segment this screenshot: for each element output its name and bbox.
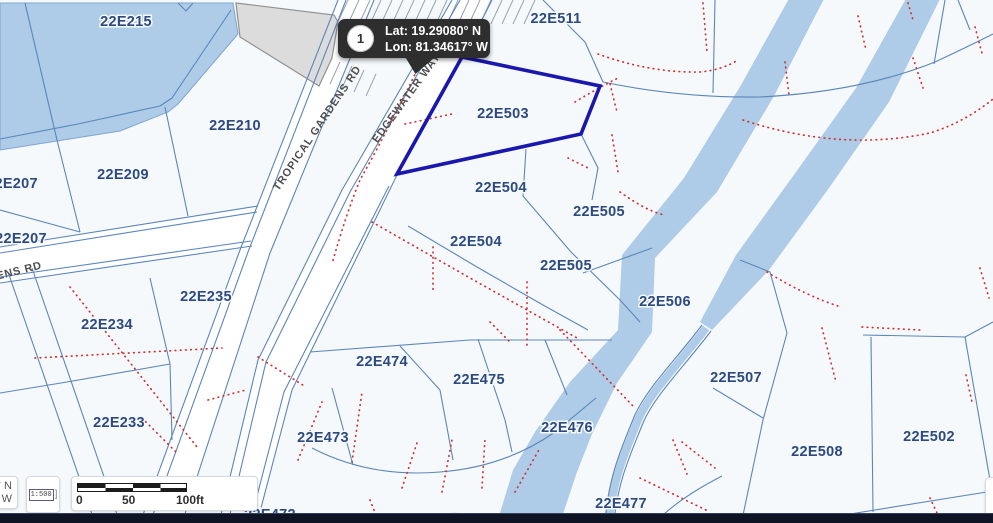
marker-1[interactable]: 1: [347, 25, 374, 52]
callout-coordinates: Lat: 19.29080° N Lon: 81.34617° W: [385, 23, 488, 55]
parcel-label-22e477: 22E477: [595, 496, 647, 512]
parcel-label-22e511: 22E511: [531, 11, 582, 27]
parcel-label-22e476: 22E476: [541, 420, 593, 436]
gray-area: [236, 3, 338, 86]
parcel-boundaries-west: [0, 107, 188, 523]
parcel-label-22e235: 22E235: [180, 289, 232, 305]
parcel-label-22e474: 22E474: [356, 354, 408, 370]
callout-lon: Lon: 81.34617° W: [385, 39, 488, 55]
parcel-label-22e505: 22E505: [573, 204, 625, 220]
parcel-label-22e215: 22E215: [100, 14, 152, 30]
parcel-label-22e504: 22E504: [475, 180, 527, 196]
parcel-label-22e508: 22E508: [791, 444, 843, 460]
parcel-label-22e209: 22E209: [97, 167, 149, 183]
scale-label-end: 100ft: [176, 493, 204, 507]
parcel-label-22e502: 22E502: [903, 429, 955, 445]
map-viewport: 22E21522E51122E21022E20922E20722E20722E2…: [0, 0, 993, 523]
scale-ratio-control[interactable]: 1:500 ]: [26, 476, 60, 513]
coords-line-1: ° N: [0, 480, 12, 493]
scale-ratio-value: 1:500: [29, 489, 54, 501]
coords-line-2: W: [0, 493, 12, 506]
parcel-label-22e207: 22E207: [0, 176, 38, 192]
coordinate-callout: 1 Lat: 19.29080° N Lon: 81.34617° W: [338, 19, 490, 58]
parcel-label-22e207: 22E207: [0, 231, 47, 247]
parcel-label-22e473: 22E473: [297, 430, 349, 446]
parcel-label-22e506: 22E506: [639, 294, 691, 310]
scale-label-mid: 50: [122, 493, 135, 507]
canal-right: [700, 0, 942, 330]
parcel-label-22e210: 22E210: [209, 118, 261, 134]
parcel-label-22e234: 22E234: [81, 317, 133, 333]
parcel-label-22e505: 22E505: [540, 258, 592, 274]
coordinates-readout: ° N W: [0, 476, 18, 509]
scale-ratio-bracket: ]: [55, 489, 58, 500]
scale-bar-graphic: [77, 483, 187, 492]
parcel-map[interactable]: 22E21522E51122E21022E20922E20722E20722E2…: [0, 0, 993, 523]
parcel-label-22e233: 22E233: [93, 415, 145, 431]
scale-label-start: 0: [76, 493, 83, 507]
parcel-label-22e504: 22E504: [450, 234, 502, 250]
parcel-label-22e507: 22E507: [710, 370, 762, 386]
bottom-bar: [0, 513, 993, 523]
parcel-label-22e475: 22E475: [453, 372, 505, 388]
parcel-label-22e503: 22E503: [477, 106, 529, 122]
callout-lat: Lat: 19.29080° N: [385, 23, 488, 39]
scale-bar: 0 50 100ft: [71, 476, 258, 511]
